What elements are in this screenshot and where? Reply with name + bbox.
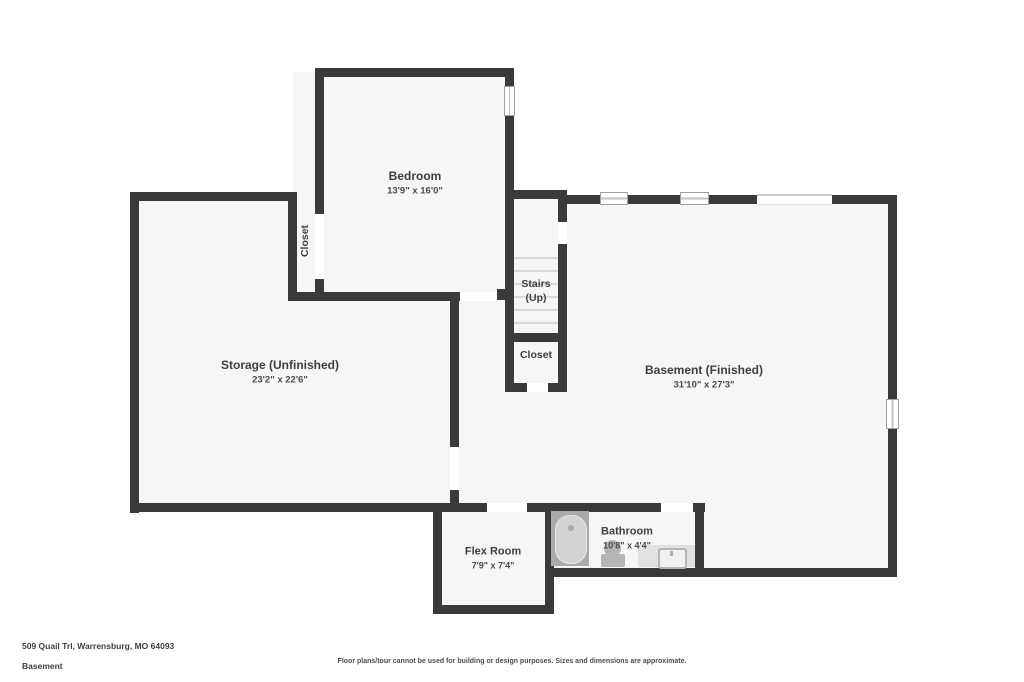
wall-basement-top-3: [709, 195, 757, 204]
wall-closet-left: [288, 192, 297, 301]
flex-room-label: Flex Room: [465, 547, 521, 558]
storage-dimensions: 23'2" x 22'6": [252, 375, 308, 385]
disclaimer-text: Floor plans/tour cannot be used for buil…: [0, 658, 1024, 665]
wall-storage-top: [130, 192, 297, 201]
wall-bedroom-bottom: [288, 292, 460, 301]
stair-treads: [514, 246, 558, 334]
wall-storage-right-stub: [450, 490, 459, 507]
sink-icon: [658, 548, 687, 569]
wall-basement-top-2: [628, 195, 680, 204]
wall-bathroom-right: [695, 503, 704, 577]
door-opening-stairs-closet: [527, 383, 548, 392]
wall-bedroom-right-lower: [505, 115, 514, 392]
wall-bedroom-right-upper: [505, 68, 514, 86]
bedroom-closet-label: Closet: [300, 225, 311, 257]
door-opening-storage-hall: [459, 292, 498, 301]
faucet-icon: [670, 551, 673, 556]
door-opening-bedroom-closet: [315, 214, 324, 279]
flex-floor: [437, 507, 549, 610]
wall-basement-right-upper: [888, 195, 897, 400]
window-basement-top-2: [680, 192, 709, 205]
door-opening-storage-basement: [450, 447, 459, 490]
wall-basement-right-lower: [888, 427, 897, 577]
wall-storage-right-upper: [450, 296, 459, 447]
door-opening-stairs-hall: [558, 222, 567, 244]
wall-stairs-closet-bottom-right: [548, 383, 567, 392]
stairs-up-label: (Up): [526, 293, 547, 304]
bedroom-dimensions: 13'9" x 16'0": [387, 186, 443, 196]
flex-room-dimensions: 7'9" x 7'4": [472, 562, 515, 571]
wall-flex-bottom: [433, 605, 554, 614]
wall-stairs-right-lower: [558, 244, 567, 392]
bathtub-basin: [555, 515, 587, 564]
basement-label: Basement (Finished): [645, 364, 763, 376]
basement-dimensions: 31'10" x 27'3": [673, 380, 734, 390]
bathroom-label: Bathroom: [601, 527, 653, 538]
wall-storage-left: [130, 192, 139, 513]
property-address: 509 Quail Trl, Warrensburg, MO 64093: [22, 641, 174, 651]
storage-label: Storage (Unfinished): [221, 359, 339, 371]
window-basement-top-wide: [757, 194, 832, 205]
bedroom-label: Bedroom: [389, 170, 442, 182]
window-basement-top-1: [600, 192, 628, 205]
wall-stairs-closet-divider: [505, 333, 567, 342]
window-bedroom-right: [504, 86, 515, 116]
stairs-closet-label: Closet: [520, 350, 552, 361]
window-basement-right: [886, 399, 899, 429]
wall-bedroom-top: [315, 68, 514, 77]
stairs-label: Stairs: [521, 279, 550, 290]
wall-stairs-closet-bottom-left: [505, 383, 527, 392]
toilet-tank: [601, 554, 625, 567]
bathroom-dimensions: 10'8" x 4'4": [603, 542, 651, 551]
wall-flex-left: [433, 503, 442, 614]
bathtub-drain: [568, 525, 574, 531]
door-opening-flex-room: [487, 503, 527, 512]
bathtub-icon: [551, 511, 589, 566]
wall-hall-door-stub: [497, 289, 505, 300]
floor-plan-canvas: Bedroom 13'9" x 16'0" Closet Storage (Un…: [0, 0, 1024, 682]
wall-basement-top-1: [558, 195, 600, 204]
door-opening-bathroom: [661, 503, 693, 512]
wall-bedroom-left-upper: [315, 68, 324, 214]
wall-basement-bottom: [545, 568, 897, 577]
